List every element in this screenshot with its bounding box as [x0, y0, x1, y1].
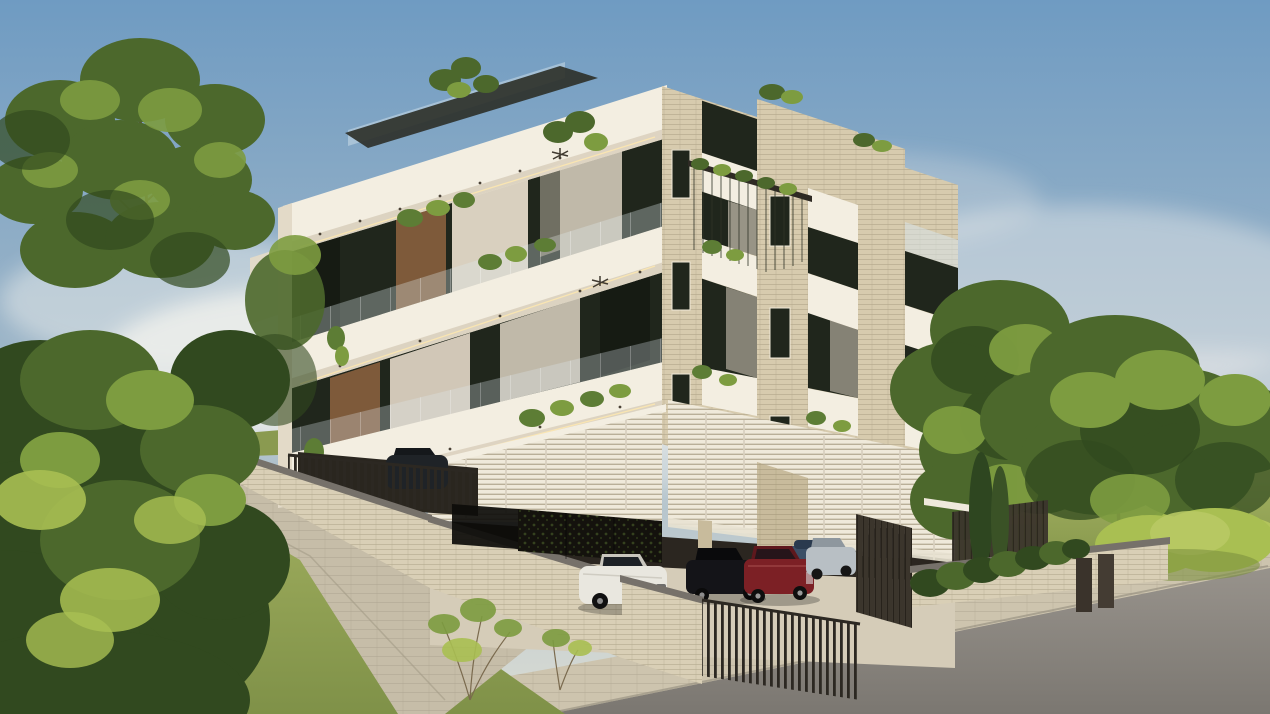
- render-canvas: [0, 0, 1270, 714]
- scene: [0, 0, 1270, 714]
- plank-fence-right: [856, 514, 912, 628]
